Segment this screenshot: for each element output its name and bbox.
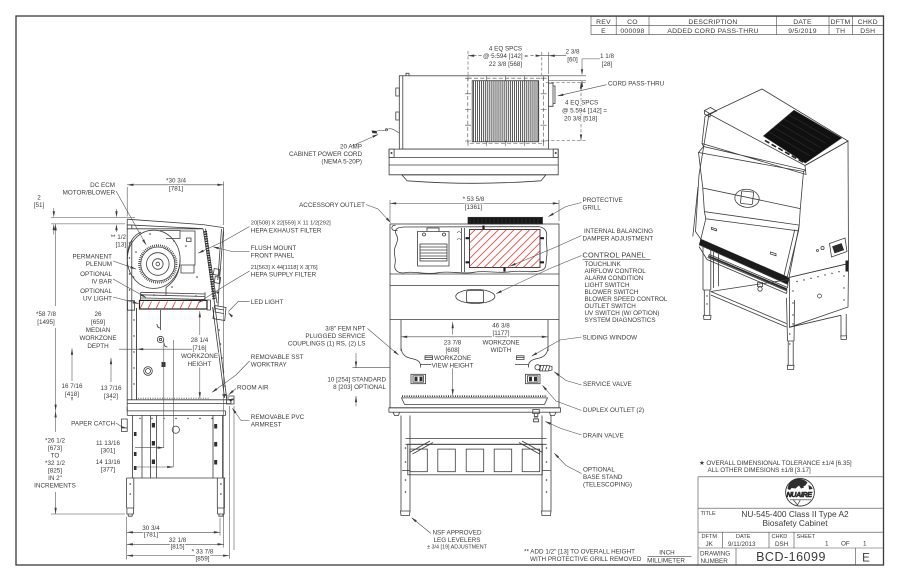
svg-text:@ 5.594 [142] =: @ 5.594 [142] = [562, 108, 607, 115]
svg-text:MOTOR/BLOWER: MOTOR/BLOWER [63, 190, 116, 197]
svg-text:SHEET: SHEET [797, 534, 816, 540]
svg-text:[673]: [673] [48, 445, 62, 452]
svg-text:[781]: [781] [169, 185, 183, 192]
svg-text:CABINET POWER CORD: CABINET POWER CORD [289, 151, 362, 158]
svg-text:REMOVABLE SST: REMOVABLE SST [251, 354, 304, 361]
svg-text:1 1/8: 1 1/8 [600, 53, 615, 60]
svg-text:2 3/8: 2 3/8 [565, 49, 580, 56]
svg-text:22 3/8 [568]: 22 3/8 [568] [489, 61, 523, 68]
svg-text:000098: 000098 [620, 28, 644, 35]
svg-text:INTERNAL BALANCING: INTERNAL BALANCING [584, 228, 653, 235]
svg-text:** 1/2: ** 1/2 [111, 234, 127, 241]
svg-text:PERMANENT: PERMANENT [72, 254, 112, 261]
svg-text:REMOVABLE PVC: REMOVABLE PVC [251, 414, 305, 421]
svg-text:FLUSH MOUNT: FLUSH MOUNT [251, 245, 297, 252]
svg-text:16 7/16: 16 7/16 [61, 383, 83, 390]
svg-text:LEG LEVELERS: LEG LEVELERS [434, 537, 481, 544]
svg-text:[418]: [418] [65, 391, 79, 398]
svg-text:PAPER CATCH: PAPER CATCH [71, 421, 115, 428]
svg-text:COUPLINGS (1) RS, (2) LS: COUPLINGS (1) RS, (2) LS [288, 341, 366, 348]
svg-text:10 [254] STANDARD: 10 [254] STANDARD [327, 376, 386, 383]
svg-text:@ 5.594 [142] =: @ 5.594 [142] = [483, 53, 528, 60]
svg-text:(NEMA 5-20P): (NEMA 5-20P) [321, 159, 362, 166]
svg-text:CHKD: CHKD [772, 534, 788, 540]
svg-text:DRAWING: DRAWING [700, 551, 730, 558]
svg-text:OUTLET SWITCH: OUTLET SWITCH [585, 303, 637, 310]
svg-text:IV BAR: IV BAR [91, 279, 112, 286]
svg-text:9/11/2013: 9/11/2013 [728, 541, 756, 548]
svg-text:DRAIN VALVE: DRAIN VALVE [583, 433, 624, 440]
svg-text:OPTIONAL: OPTIONAL [80, 271, 112, 278]
svg-text:DFTM: DFTM [702, 534, 718, 540]
svg-text:WITH PROTECTIVE GRILL REMOVED: WITH PROTECTIVE GRILL REMOVED [530, 556, 642, 563]
svg-text:HEIGHT: HEIGHT [188, 361, 212, 368]
svg-text:WORKTRAY: WORKTRAY [251, 362, 288, 369]
svg-text:(TELESCOPING): (TELESCOPING) [583, 482, 632, 489]
svg-text:*26 1/2: *26 1/2 [45, 438, 65, 445]
svg-text:[28]: [28] [602, 61, 613, 68]
svg-text:VIEW HEIGHT: VIEW HEIGHT [432, 362, 474, 369]
svg-text:9/5/2019: 9/5/2019 [788, 28, 816, 35]
svg-text:HEPA SUPPLY FILTER: HEPA SUPPLY FILTER [251, 271, 317, 278]
svg-text:[1495]: [1495] [37, 319, 55, 326]
svg-text:OPTIONAL: OPTIONAL [80, 288, 112, 295]
svg-text:* 53 5/8: * 53 5/8 [463, 196, 485, 203]
svg-text:4 EQ SPCS: 4 EQ SPCS [565, 100, 598, 107]
svg-text:NUAIRE: NUAIRE [787, 490, 813, 499]
svg-text:[377]: [377] [101, 467, 115, 474]
svg-text:DAMPER ADJUSTMENT: DAMPER ADJUSTMENT [583, 236, 654, 243]
svg-text:20 3/8 [518]: 20 3/8 [518] [564, 116, 598, 123]
svg-text:ADDED CORD PASS-THRU: ADDED CORD PASS-THRU [667, 28, 758, 35]
svg-text:13 7/16: 13 7/16 [100, 385, 122, 392]
svg-text:28 1/4: 28 1/4 [191, 337, 209, 344]
svg-text:WORKZONE: WORKZONE [434, 355, 471, 362]
svg-text:[781]: [781] [144, 532, 158, 539]
svg-text:3/8" FEM NPT: 3/8" FEM NPT [325, 326, 366, 333]
svg-text:SERVICE VALVE: SERVICE VALVE [583, 381, 632, 388]
svg-text:PLUGGED SERVICE: PLUGGED SERVICE [305, 333, 365, 340]
svg-text:[51]: [51] [34, 202, 45, 209]
svg-text:46 3/8: 46 3/8 [492, 322, 510, 329]
svg-text:MILLIMETER: MILLIMETER [647, 558, 685, 565]
svg-text:ALARM CONDITION: ALARM CONDITION [585, 275, 644, 282]
svg-text:DEPTH: DEPTH [87, 343, 109, 350]
svg-text:WORKZONE: WORKZONE [181, 353, 218, 360]
svg-text:DSH: DSH [775, 541, 789, 548]
svg-text:[60]: [60] [567, 57, 578, 64]
svg-text:14 13/16: 14 13/16 [96, 459, 121, 466]
svg-text:MEDIAN: MEDIAN [86, 327, 111, 334]
svg-text:TOUCHLINK: TOUCHLINK [585, 261, 622, 268]
svg-text:26: 26 [94, 311, 102, 318]
svg-text:LED LIGHT: LED LIGHT [251, 299, 284, 306]
svg-text:Biosafety Cabinet: Biosafety Cabinet [762, 518, 828, 528]
svg-text:2: 2 [37, 195, 41, 202]
svg-text:NSF APPROVED: NSF APPROVED [433, 530, 482, 537]
svg-text:JK: JK [706, 541, 714, 548]
svg-text:CHKD: CHKD [858, 19, 878, 26]
svg-text:ALL OTHER DIMESIONS ±1/8 [3.17: ALL OTHER DIMESIONS ±1/8 [3.17] [708, 467, 812, 474]
svg-text:DC ECM: DC ECM [90, 182, 115, 189]
svg-text:TITLE: TITLE [701, 511, 716, 517]
svg-text:UV LIGHT: UV LIGHT [83, 296, 112, 303]
svg-text:BASE STAND: BASE STAND [583, 474, 623, 481]
svg-text:1: 1 [825, 541, 829, 548]
svg-text:[1361]: [1361] [465, 204, 483, 211]
svg-text:INCH: INCH [659, 550, 675, 557]
svg-text:DSH: DSH [860, 28, 875, 35]
svg-text:23 7/8: 23 7/8 [444, 339, 462, 346]
svg-text:NUMBER: NUMBER [701, 558, 729, 565]
svg-text:CORD PASS-THRU: CORD PASS-THRU [608, 81, 665, 88]
svg-text:ARMREST: ARMREST [251, 422, 282, 429]
svg-text:INCREMENTS: INCREMENTS [34, 483, 76, 490]
svg-text:*32 1/2: *32 1/2 [45, 460, 65, 467]
svg-text:PLENUM: PLENUM [86, 261, 112, 268]
svg-text:GRILL: GRILL [583, 205, 602, 212]
svg-text:PROTECTIVE: PROTECTIVE [583, 197, 623, 204]
svg-text:1: 1 [863, 541, 867, 548]
svg-text:TH: TH [836, 28, 846, 35]
svg-text:DUPLEX OUTLET (2): DUPLEX OUTLET (2) [583, 407, 644, 414]
svg-text:** ADD 1/2" [13] TO OVERALL HE: ** ADD 1/2" [13] TO OVERALL HEIGHT [524, 549, 635, 556]
svg-text:21[563] X 44[1118] X 3[76]: 21[563] X 44[1118] X 3[76] [251, 265, 318, 271]
svg-text:[13]: [13] [115, 242, 126, 249]
svg-text:DFTM: DFTM [831, 19, 851, 26]
svg-text:UV SWITCH (W/ OPTION): UV SWITCH (W/ OPTION) [585, 310, 660, 317]
svg-text:20 AMP: 20 AMP [340, 144, 362, 151]
svg-text:[859]: [859] [195, 555, 209, 562]
svg-text:[342]: [342] [104, 393, 118, 400]
svg-text:ACCESSORY OUTLET: ACCESSORY OUTLET [299, 202, 365, 209]
svg-text:E: E [862, 553, 870, 565]
svg-text:TO: TO [51, 453, 60, 460]
svg-text:4 EQ SPCS: 4 EQ SPCS [489, 45, 522, 52]
svg-text:*58 7/8: *58 7/8 [36, 311, 56, 318]
svg-text:[1177]: [1177] [492, 330, 509, 337]
svg-text:★ OVERALL DIMENSIONAL TOLERANC: ★ OVERALL DIMENSIONAL TOLERANCE ±1/4 [6.… [699, 460, 852, 467]
svg-text:BLOWER SWITCH: BLOWER SWITCH [585, 289, 639, 296]
svg-text:WORKZONE: WORKZONE [79, 335, 116, 342]
svg-text:WIDTH: WIDTH [491, 347, 512, 354]
svg-text:[608]: [608] [445, 347, 459, 354]
svg-text:LIGHT SWITCH: LIGHT SWITCH [585, 282, 630, 289]
svg-text:SYSTEM DIAGNOSTICS: SYSTEM DIAGNOSTICS [585, 317, 656, 324]
svg-text:SLIDING WINDOW: SLIDING WINDOW [583, 335, 638, 342]
svg-text:FRONT PANEL: FRONT PANEL [251, 252, 295, 259]
svg-text:CO: CO [627, 19, 638, 26]
svg-text:*30 3/4: *30 3/4 [166, 177, 186, 184]
svg-text:OF: OF [841, 541, 850, 548]
svg-text:DATE: DATE [793, 19, 812, 26]
svg-text:IN 2": IN 2" [48, 475, 62, 482]
svg-text:CONTROL PANEL: CONTROL PANEL [583, 251, 646, 260]
svg-text:WORKZONE: WORKZONE [482, 339, 519, 346]
svg-text:OPTIONAL: OPTIONAL [583, 467, 615, 474]
svg-text:[825]: [825] [48, 468, 62, 475]
svg-text:[301]: [301] [101, 448, 115, 455]
svg-text:[815]: [815] [170, 544, 184, 551]
svg-text:8 [203] OPTIONAL: 8 [203] OPTIONAL [333, 384, 386, 391]
svg-text:DATE: DATE [736, 534, 751, 540]
svg-text:REV: REV [596, 19, 611, 26]
svg-text:± 3/4 [19] ADJUSTMENT: ± 3/4 [19] ADJUSTMENT [427, 545, 488, 551]
svg-text:E: E [601, 28, 606, 35]
svg-text:[659]: [659] [91, 319, 105, 326]
svg-text:AIRFLOW CONTROL: AIRFLOW CONTROL [585, 268, 647, 275]
svg-text:BLOWER SPEED CONTROL: BLOWER SPEED CONTROL [585, 296, 668, 303]
svg-text:ROOM AIR: ROOM AIR [237, 385, 269, 392]
svg-text:BCD-16099: BCD-16099 [756, 550, 826, 564]
svg-text:HEPA EXHAUST FILTER: HEPA EXHAUST FILTER [251, 227, 322, 234]
svg-text:[716]: [716] [192, 345, 206, 352]
svg-text:11 13/16: 11 13/16 [96, 440, 121, 447]
svg-text:DESCRIPTION: DESCRIPTION [688, 19, 737, 26]
svg-text:20[508] X 22[559] X 11 1/2[292: 20[508] X 22[559] X 11 1/2[292] [251, 220, 331, 226]
